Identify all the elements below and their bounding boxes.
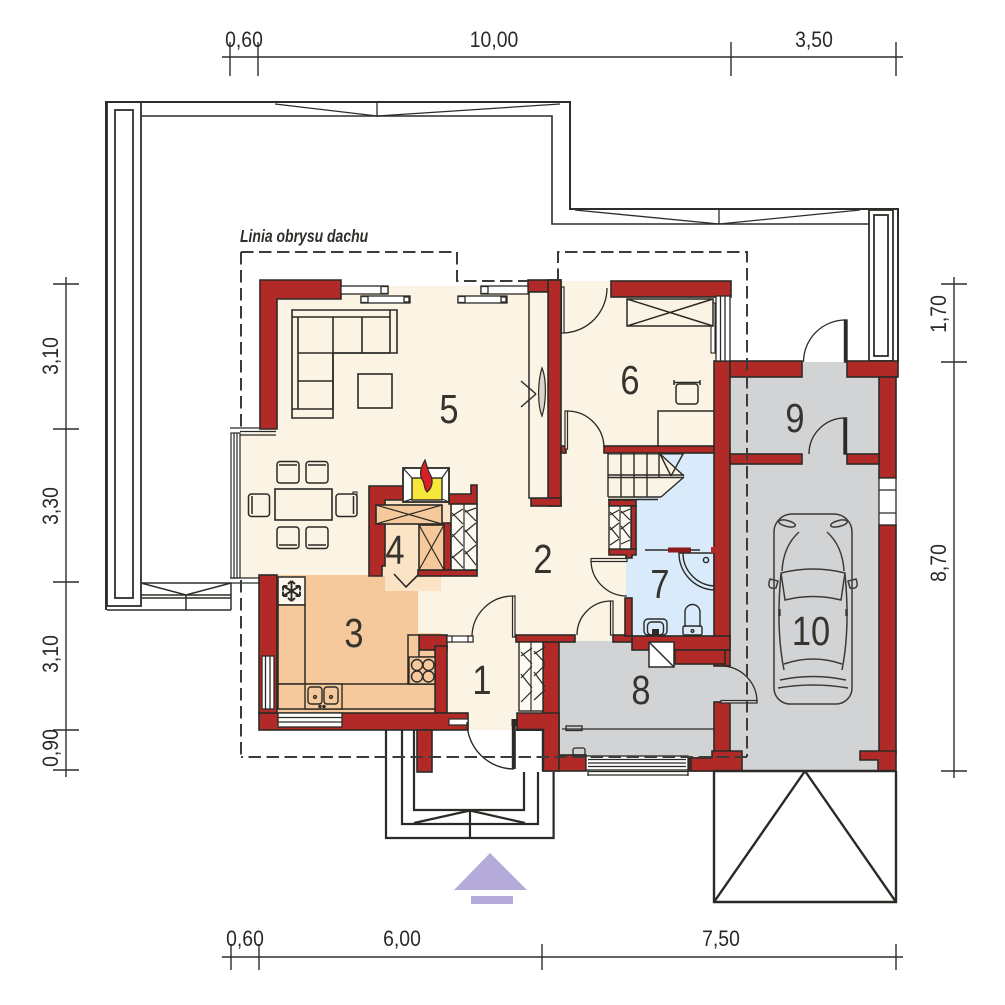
- svg-text:0,90: 0,90: [39, 729, 63, 767]
- svg-text:1,70: 1,70: [927, 295, 951, 333]
- svg-text:2: 2: [533, 537, 552, 582]
- svg-text:Linia obrysu dachu: Linia obrysu dachu: [240, 228, 368, 247]
- svg-text:6: 6: [620, 358, 639, 403]
- svg-text:8,70: 8,70: [927, 544, 951, 582]
- svg-text:7,50: 7,50: [702, 927, 740, 951]
- svg-text:3,10: 3,10: [39, 337, 63, 375]
- svg-text:0,60: 0,60: [226, 927, 264, 951]
- svg-text:3,50: 3,50: [795, 28, 833, 52]
- svg-text:10,00: 10,00: [470, 28, 518, 52]
- svg-text:3,30: 3,30: [39, 487, 63, 525]
- svg-text:6,00: 6,00: [383, 927, 421, 951]
- svg-text:8: 8: [631, 668, 650, 713]
- svg-text:3: 3: [344, 611, 363, 656]
- svg-text:9: 9: [785, 396, 804, 441]
- svg-text:7: 7: [650, 562, 669, 607]
- svg-text:10: 10: [792, 609, 830, 654]
- svg-text:4: 4: [385, 528, 404, 573]
- svg-text:3,10: 3,10: [39, 635, 63, 673]
- svg-text:5: 5: [439, 387, 458, 432]
- svg-text:1: 1: [472, 658, 491, 703]
- svg-text:0,60: 0,60: [225, 28, 263, 52]
